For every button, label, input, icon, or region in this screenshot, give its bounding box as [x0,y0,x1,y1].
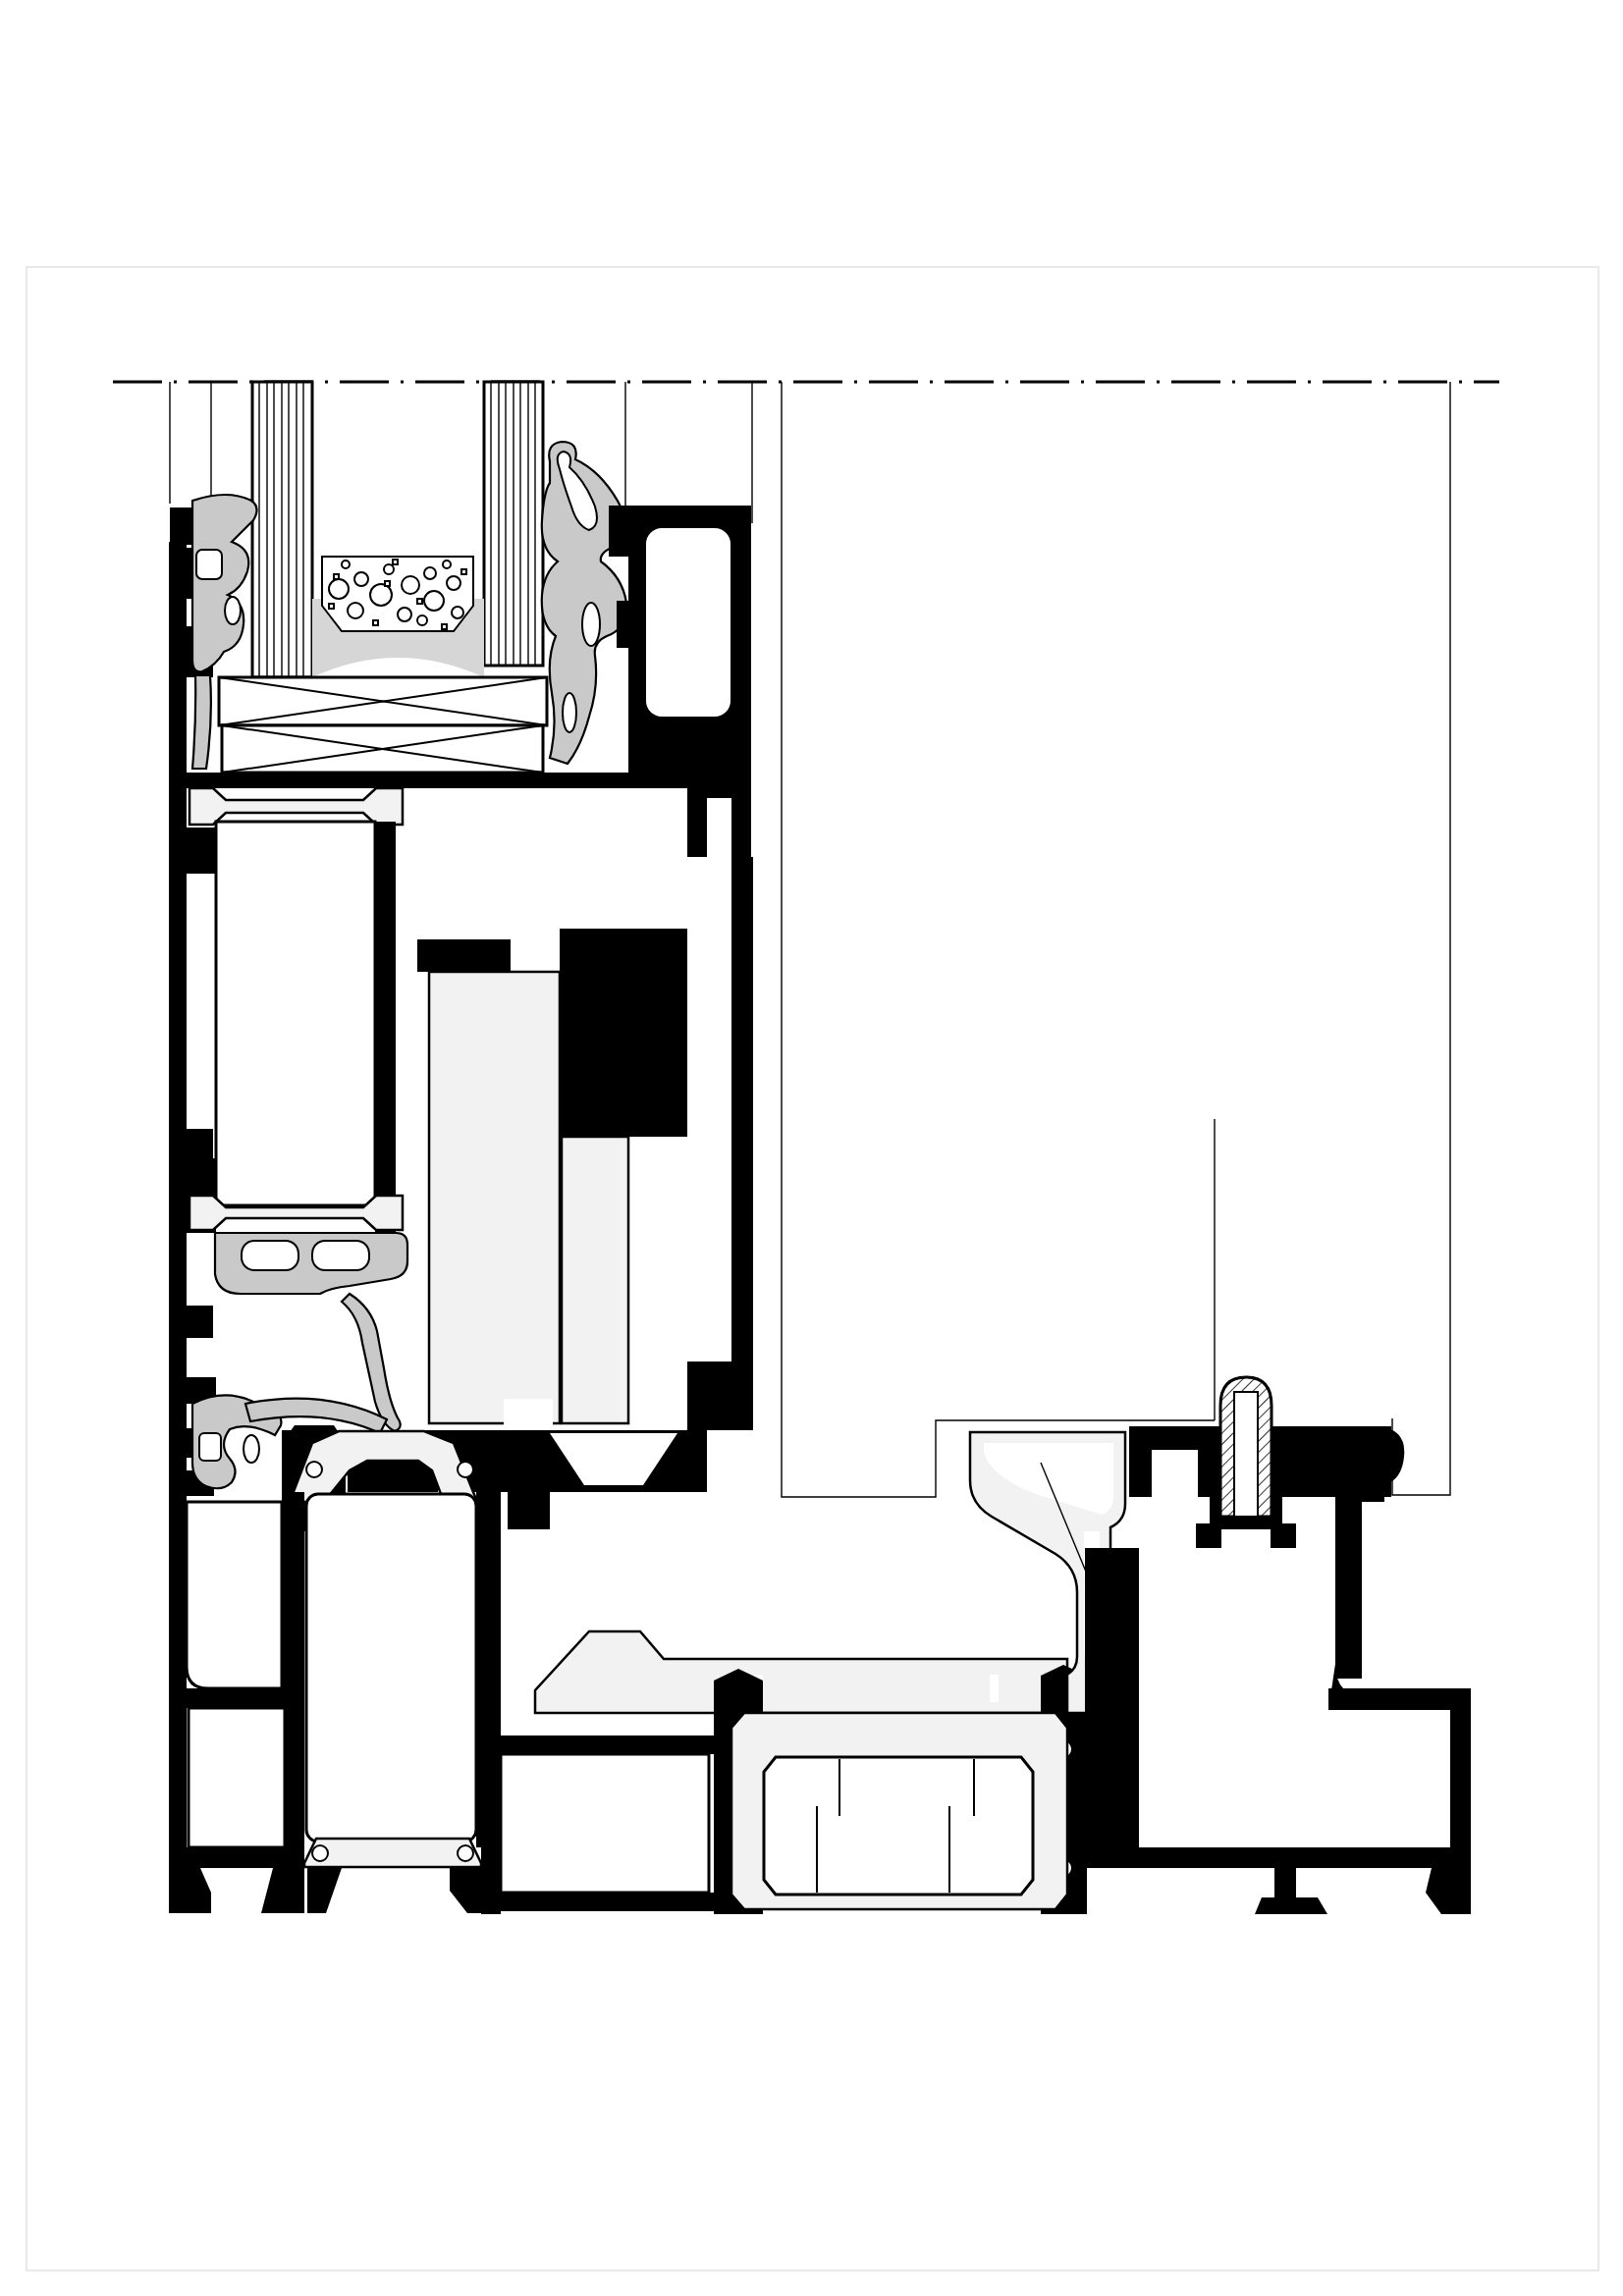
spacer-bar [322,557,473,631]
insulation-insert-2 [429,972,560,1423]
glazing-bead [609,506,751,857]
chamber-main [306,1494,476,1842]
section-drawing-canvas [0,0,1623,2296]
wall-outline-left [782,382,1215,1497]
sill-plate [535,1631,1067,1713]
threshold-assembly [481,1531,1087,1914]
glazing-block-lower [222,725,543,773]
glass-pane-outer [252,382,312,677]
frame-bottom-left [169,1492,501,1913]
door-leaf-frame-right [1085,1377,1471,1914]
thermal-break-bottom [304,1839,481,1867]
glazing-block-upper [219,677,547,725]
hinge-pin [1220,1377,1271,1517]
wall-outline-right [1392,382,1450,1495]
insulation-insert-1 [216,822,375,1205]
drawing-page [0,0,1623,2296]
chamber-small-lower [189,1708,285,1847]
thermal-break-top [189,788,403,825]
inner-gasket-top-right [542,442,626,764]
glazing-unit [219,382,547,773]
threshold-insulator [731,1713,1067,1909]
gasket-foot-strip [192,675,211,769]
glass-pane-inner [484,382,543,666]
chamber-small-upper [187,1502,282,1688]
